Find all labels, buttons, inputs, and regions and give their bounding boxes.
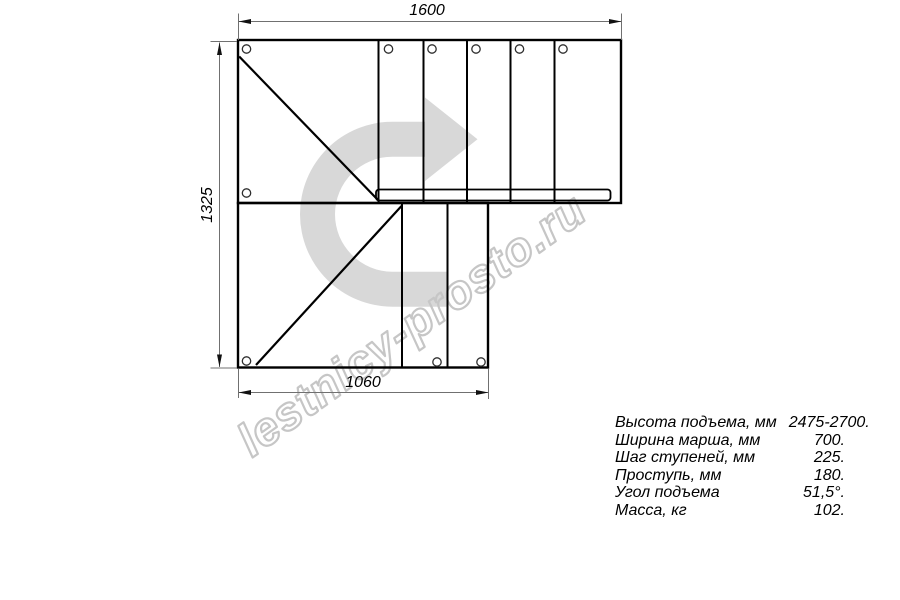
dim-arrow-down-icon (217, 355, 222, 368)
dimension-left-label: 1325 (199, 187, 216, 223)
spec-label: Проступь, мм (615, 467, 721, 485)
spec-value: 102. (814, 502, 845, 520)
spec-label: Высота подъема, мм (615, 414, 777, 432)
spec-row-height: Высота подъема, мм 2475-2700. (615, 414, 845, 432)
dimension-left: 1325 (199, 42, 237, 369)
dim-arrow-right-icon (609, 19, 622, 24)
spec-row-flight-width: Ширина марша, мм 700. (615, 432, 845, 450)
dim-arrow-left-icon (239, 390, 252, 395)
spec-label: Ширина марша, мм (615, 432, 760, 450)
spec-row-tread: Проступь, мм 180. (615, 467, 845, 485)
staircase-drawing-page: lestnicy-prosto.ru (0, 0, 900, 600)
dimension-top: 1600 (239, 2, 622, 40)
spec-value: 180. (814, 467, 845, 485)
dimension-top-label: 1600 (409, 2, 445, 19)
spec-row-step-pitch: Шаг ступеней, мм 225. (615, 449, 845, 467)
dim-arrow-left-icon (239, 19, 252, 24)
dim-arrow-right-icon (476, 390, 489, 395)
spec-value: 225. (814, 449, 845, 467)
spec-value: 2475-2700. (789, 414, 870, 432)
spec-label: Масса, кг (615, 502, 687, 520)
dim-arrow-up-icon (217, 43, 222, 56)
upper-flight-mount-holes (242, 45, 567, 197)
watermark-text: lestnicy-prosto.ru (227, 182, 596, 466)
spec-label: Шаг ступеней, мм (615, 449, 755, 467)
spec-row-angle: Угол подъема 51,5°. (615, 484, 845, 502)
spec-value: 51,5°. (803, 484, 845, 502)
spec-value: 700. (814, 432, 845, 450)
upper-flight-step-lines (379, 41, 555, 202)
spec-row-mass: Масса, кг 102. (615, 502, 845, 520)
spec-table: Высота подъема, мм 2475-2700. Ширина мар… (615, 414, 845, 519)
dimension-bottom-label: 1060 (345, 374, 381, 391)
spec-label: Угол подъема (615, 484, 720, 502)
